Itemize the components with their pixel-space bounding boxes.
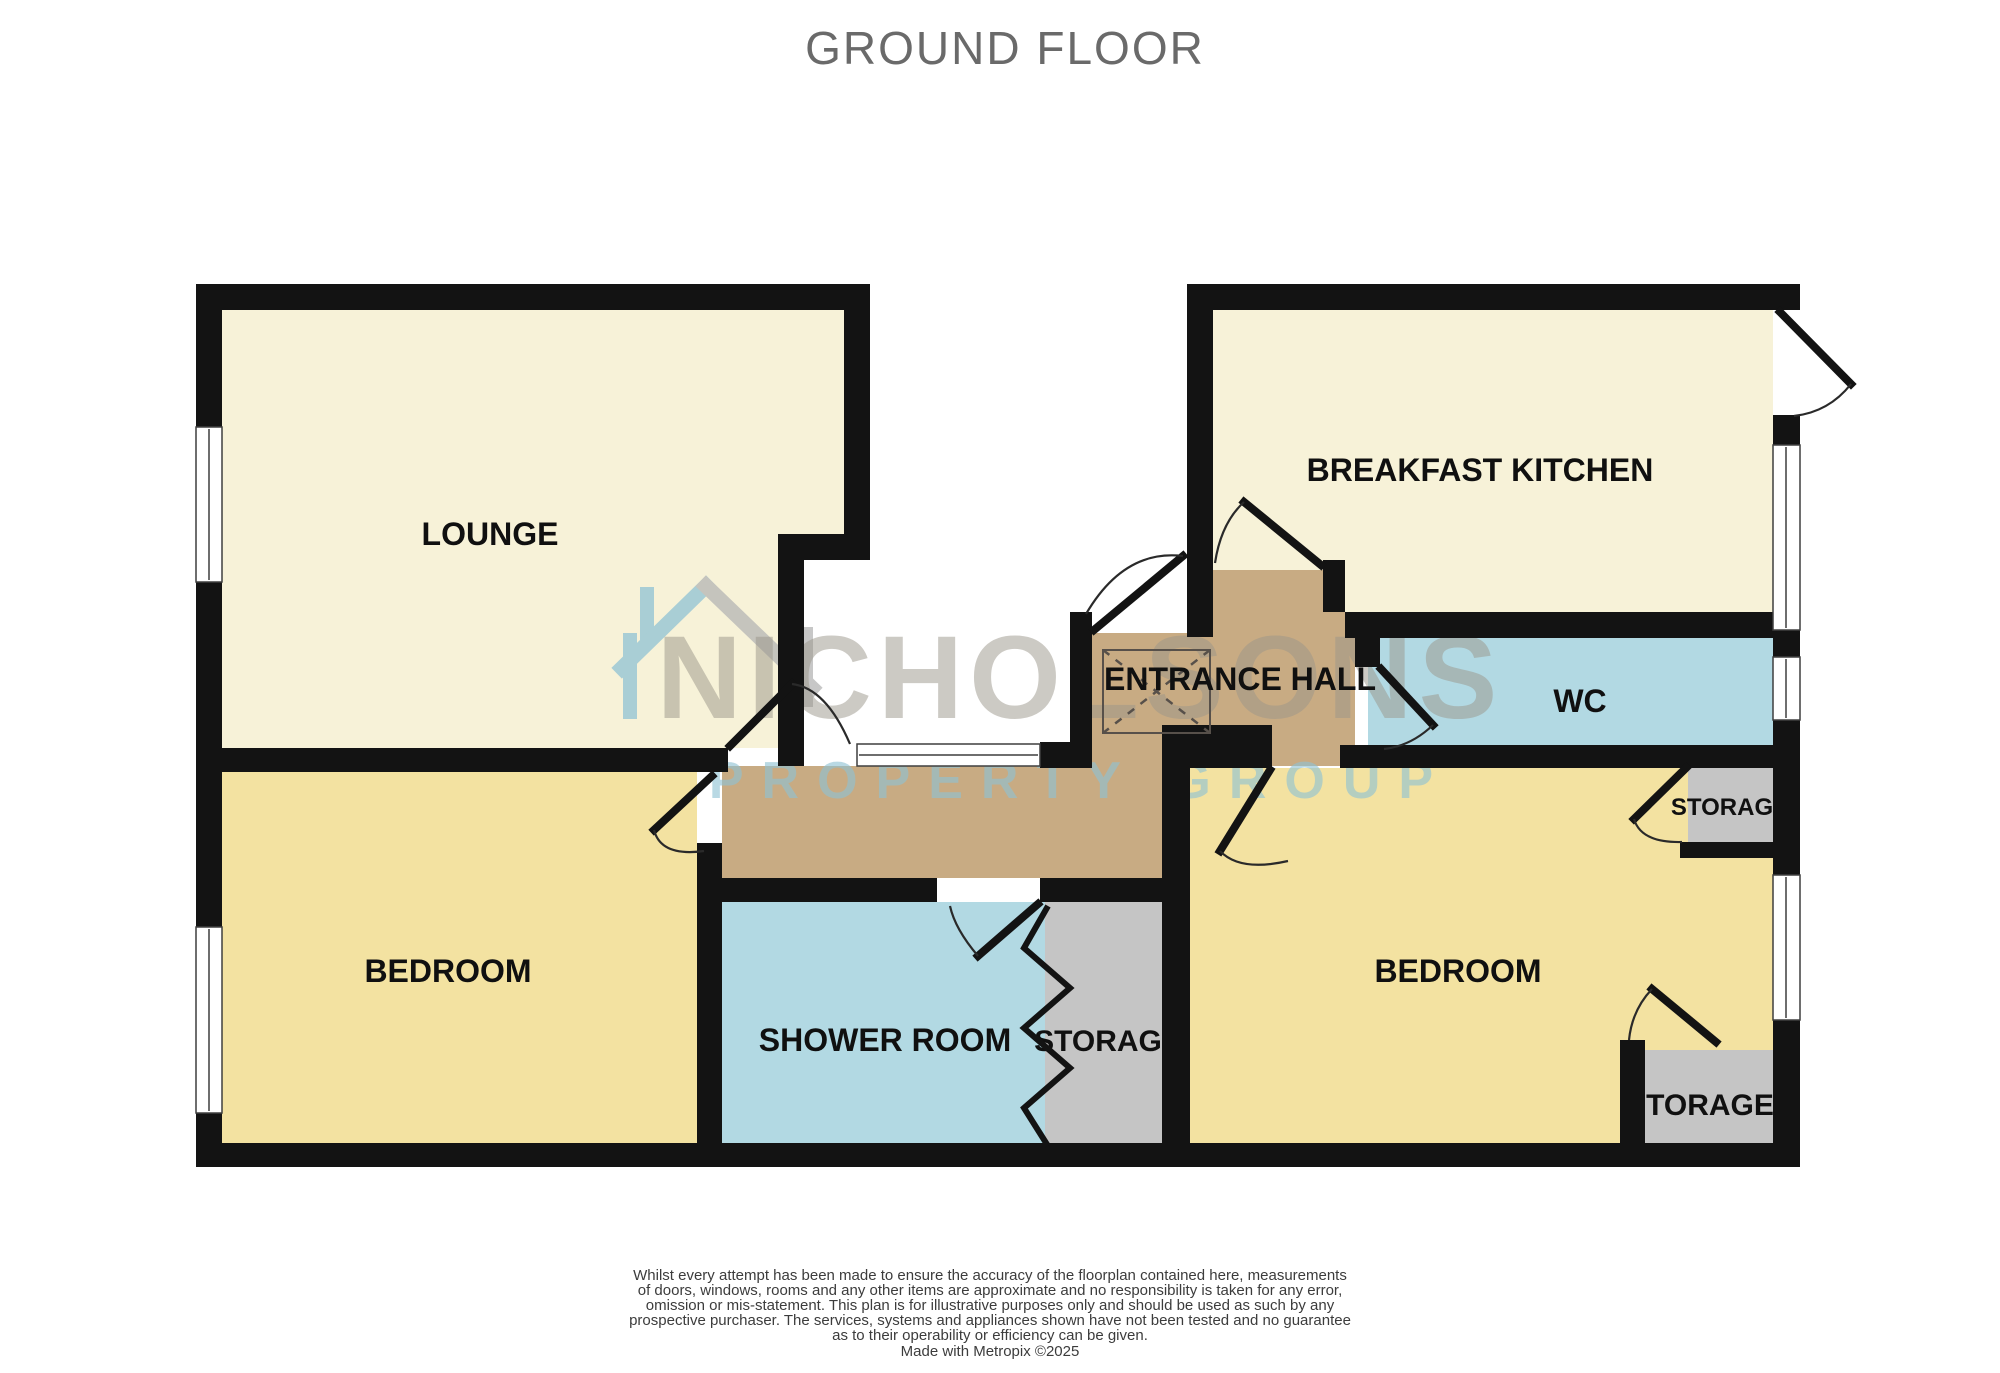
wall-segment <box>196 284 222 427</box>
window-bedroom-right <box>1773 875 1800 1020</box>
floorplan: NICHOLSONS PROPERTY GROUP STORAGE STORAG… <box>0 0 2000 1373</box>
label-lounge: LOUNGE <box>422 516 559 552</box>
label-wc: WC <box>1553 683 1606 719</box>
wall-segment <box>196 1143 1800 1167</box>
label-entrance-hall: ENTRANCE HALL <box>1104 661 1376 697</box>
window-hall-porch <box>857 744 1040 766</box>
door-kitchen-exterior <box>1780 312 1851 416</box>
wall-segment <box>1323 560 1345 612</box>
floorplan-page: NICHOLSONS PROPERTY GROUP STORAGE STORAG… <box>0 0 2000 1373</box>
wall-segment <box>844 284 870 540</box>
window-bedroom-left <box>196 927 222 1113</box>
wall-segment <box>1187 284 1800 310</box>
wall-segment <box>1773 415 1800 445</box>
wall-segment <box>196 284 870 310</box>
wall-segment <box>1190 725 1272 768</box>
window-lounge-left <box>196 427 222 582</box>
wall-segment <box>697 878 937 902</box>
wall-segment <box>1162 725 1190 1143</box>
disclaimer: Whilst every attempt has been made to en… <box>629 1267 1351 1360</box>
window-wc-right <box>1773 657 1800 720</box>
wall-segment <box>697 843 722 1143</box>
wall-segment <box>1070 612 1092 768</box>
wall-segment <box>1680 842 1773 858</box>
wall-segment <box>1345 612 1800 638</box>
wall-segment <box>778 560 804 766</box>
wall-segment <box>1187 310 1213 637</box>
wall-segment <box>196 748 728 772</box>
wall-segment <box>1340 745 1800 768</box>
label-shower-room: SHOWER ROOM <box>759 1022 1011 1058</box>
room-storage-center <box>1045 902 1162 1143</box>
label-breakfast-kitchen: BREAKFAST KITCHEN <box>1307 452 1654 488</box>
window-kitchen-right <box>1773 445 1800 630</box>
disclaimer-line: as to their operability or efficiency ca… <box>832 1327 1148 1344</box>
label-storage-right-top: STORAGE <box>1671 794 1789 821</box>
label-storage-right-bottom: STORAGE <box>1626 1089 1774 1122</box>
disclaimer-credit: Made with Metropix ©2025 <box>901 1343 1080 1360</box>
wall-segment <box>1040 742 1070 768</box>
wall-segment <box>778 534 870 560</box>
label-bedroom-left: BEDROOM <box>364 953 531 989</box>
label-bedroom-right: BEDROOM <box>1374 953 1541 989</box>
wall-segment <box>1040 878 1162 902</box>
page-title: GROUND FLOOR <box>805 22 1205 74</box>
wall-segment <box>1620 1040 1645 1143</box>
wall-segment <box>1773 720 1800 875</box>
